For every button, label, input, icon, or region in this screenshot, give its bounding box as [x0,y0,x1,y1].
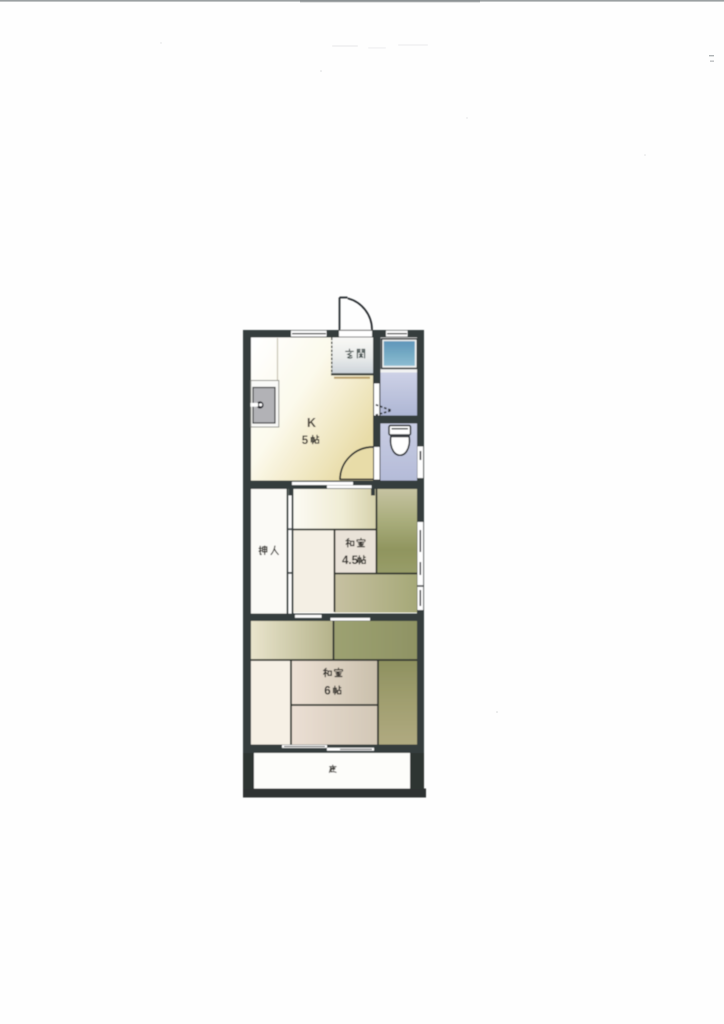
svg-text:K: K [307,416,316,430]
svg-text:5: 5 [302,435,309,447]
svg-text:4.5: 4.5 [342,555,359,567]
svg-text:6: 6 [324,686,330,698]
